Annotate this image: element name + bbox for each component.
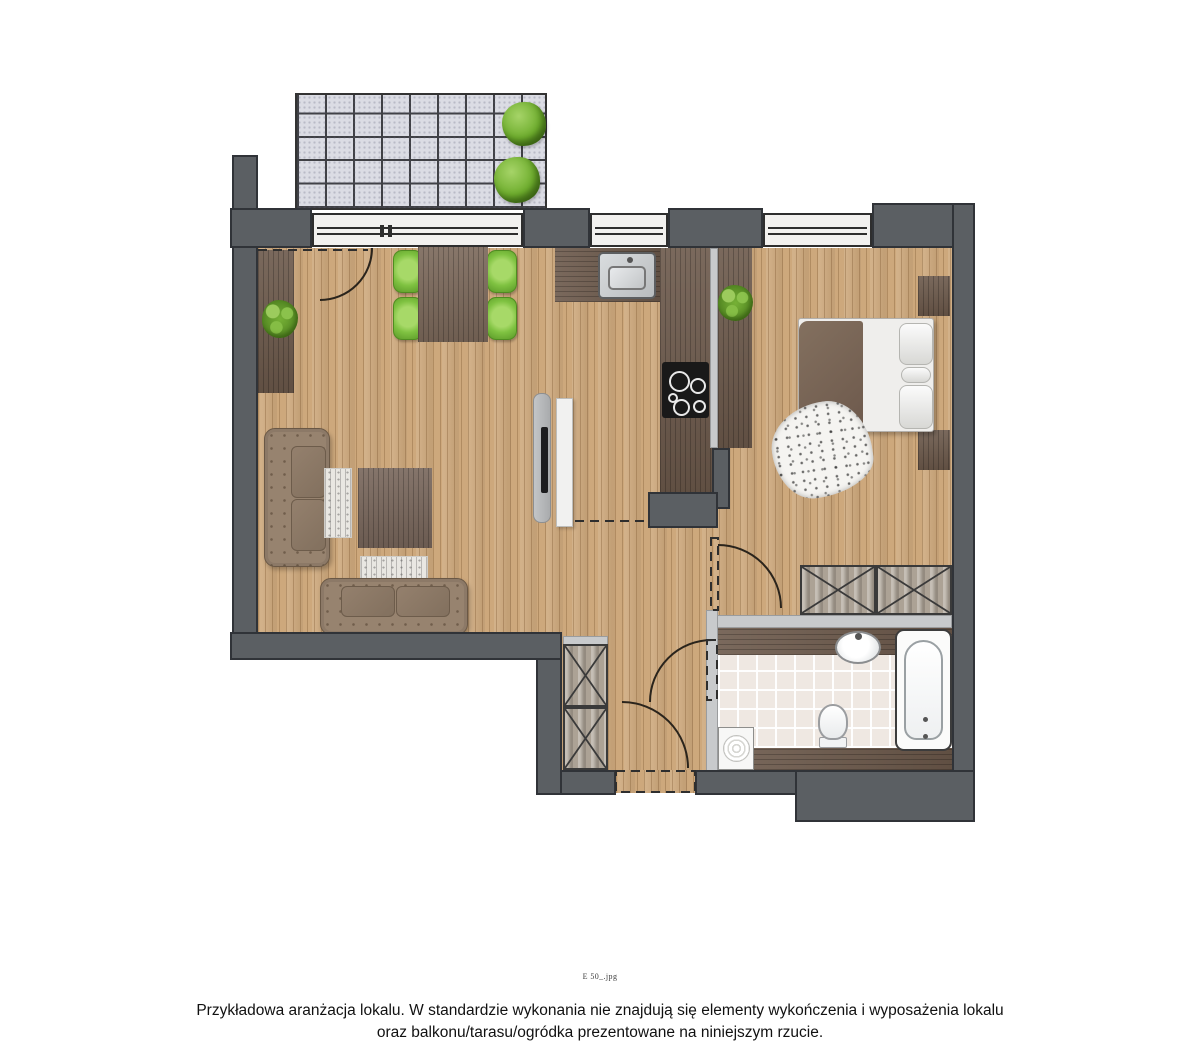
- kitchen-sink: [598, 252, 656, 299]
- bathtub: [895, 629, 952, 751]
- window-frame-cap: [388, 225, 392, 237]
- wall-bottom-right: [795, 770, 975, 822]
- kitchen-sink-basin: [608, 266, 646, 290]
- bathroom-left-wall: [706, 610, 718, 772]
- dining-chair: [487, 250, 517, 293]
- nightstand: [918, 430, 950, 470]
- window-frame: [317, 227, 518, 235]
- rug: [324, 468, 352, 538]
- wardrobe-section: [800, 565, 876, 615]
- disclaimer-line-2: oraz balkonu/tarasu/ogródka prezentowane…: [0, 1022, 1200, 1044]
- potted-plant-icon: [718, 285, 753, 321]
- bed-pillow: [899, 385, 933, 429]
- washbasin-faucet: [855, 633, 862, 640]
- window-frame: [768, 227, 867, 235]
- bedroom-window: [763, 213, 872, 247]
- kitchen-window: [590, 213, 668, 247]
- wall-hall-bottom: [560, 770, 616, 795]
- bed-pillow: [899, 323, 933, 365]
- sofa-cushion: [341, 586, 395, 617]
- burner-icon: [673, 399, 690, 416]
- kitchen-partition-wall: [710, 248, 718, 448]
- balcony-door-window: [312, 213, 523, 247]
- wardrobe-section: [876, 565, 952, 615]
- sofa-cushion: [291, 499, 326, 551]
- dining-table: [418, 243, 488, 342]
- terrace-bush-icon: [494, 157, 540, 203]
- burner-icon: [693, 400, 706, 413]
- page: E 50_.jpg Przykładowa aranżacja lokalu. …: [0, 0, 1200, 1060]
- entrance-threshold-floor: [616, 770, 695, 793]
- bathroom-top-wall: [712, 615, 952, 628]
- hall-closet-section: [563, 644, 608, 707]
- bathtub-overflow: [923, 734, 928, 739]
- sofa-large: [264, 428, 330, 567]
- wall-left-top-bar: [232, 155, 258, 210]
- wall-bottom-mid: [695, 770, 797, 795]
- hall-closet-section: [563, 707, 608, 770]
- floor-plan: [0, 0, 1200, 880]
- kitchen-faucet: [627, 257, 633, 263]
- disclaimer-line-1: Przykładowa aranżacja lokalu. W standard…: [0, 1000, 1200, 1022]
- dining-chair: [487, 297, 517, 340]
- window-frame: [595, 227, 663, 235]
- cooktop: [662, 362, 709, 418]
- wall-kitchen-foot: [648, 492, 718, 528]
- bed-pillow: [901, 367, 931, 383]
- nightstand: [918, 276, 950, 316]
- potted-plant-icon: [262, 300, 298, 338]
- wall-bottom-living: [230, 632, 562, 660]
- wall-left: [232, 246, 258, 638]
- bedroom-side-cabinet: [718, 248, 752, 448]
- disclaimer-caption: Przykładowa aranżacja lokalu. W standard…: [0, 1000, 1200, 1044]
- tv-panel: [556, 398, 573, 527]
- burner-icon: [669, 371, 690, 392]
- washing-machine-door: [723, 735, 750, 762]
- tv-icon: [541, 427, 548, 493]
- wall-right: [952, 203, 975, 822]
- toilet: [818, 704, 848, 740]
- window-frame-cap: [380, 225, 384, 237]
- wall-hall-left: [536, 658, 562, 795]
- wall-top-left: [230, 208, 312, 248]
- filename-note: E 50_.jpg: [0, 972, 1200, 981]
- bathtub-inner: [904, 640, 943, 740]
- sofa-small: [320, 578, 468, 635]
- washing-machine: [718, 727, 754, 770]
- coffee-table: [358, 468, 432, 548]
- sofa-cushion: [291, 446, 326, 498]
- wall-top-mid-1: [523, 208, 590, 248]
- wall-top-mid-2: [668, 208, 763, 248]
- terrace-bush-icon: [502, 102, 546, 146]
- burner-icon: [690, 378, 706, 394]
- bathtub-drain: [923, 717, 928, 722]
- sofa-cushion: [396, 586, 450, 617]
- outside-area: [230, 660, 536, 800]
